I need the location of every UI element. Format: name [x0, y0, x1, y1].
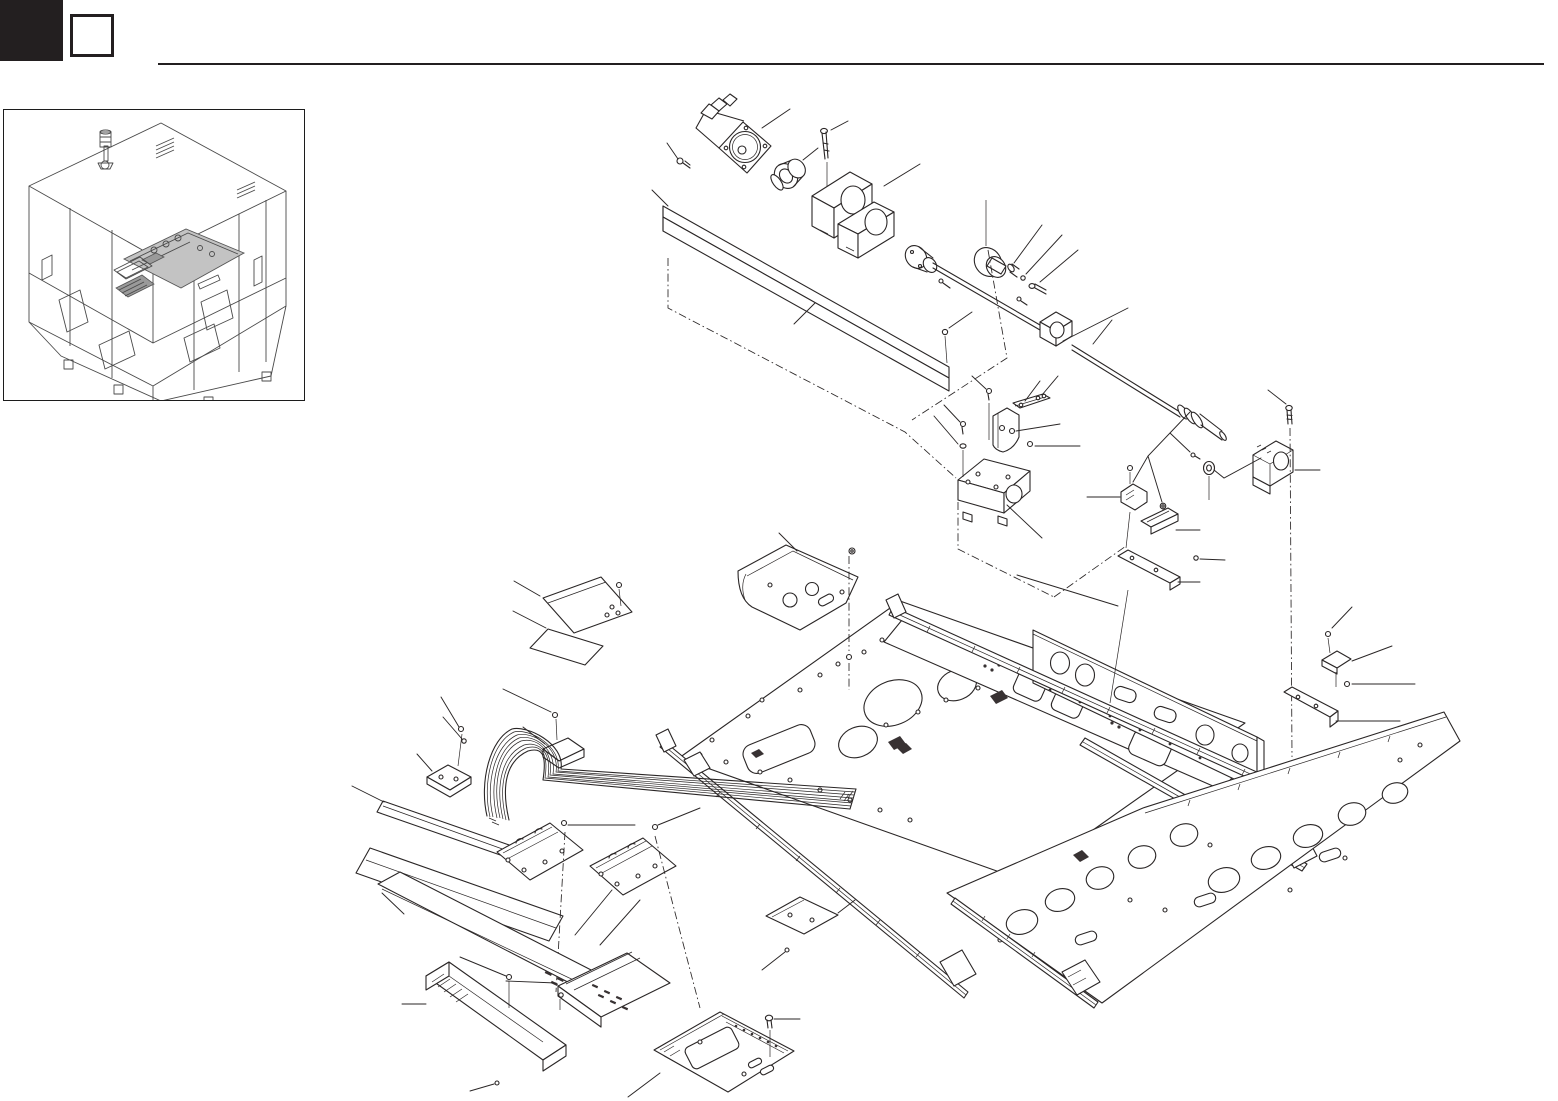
servo-motor	[696, 94, 790, 173]
cover-plate-small	[513, 577, 632, 633]
cover-strip-short	[352, 786, 512, 857]
l-bracket	[993, 408, 1060, 452]
corrugated-cover	[402, 957, 566, 1091]
catalog-page	[0, 0, 1558, 1101]
end-bolt	[1268, 390, 1292, 424]
tip-screw	[1170, 433, 1200, 459]
ball-screw-shaft	[933, 263, 1228, 441]
small-plate-mid	[762, 897, 855, 970]
motor-mount-block	[958, 459, 1042, 538]
rail-sensor-strip-right	[1284, 682, 1415, 728]
flange-screw	[652, 143, 690, 206]
end-block-center-line	[1290, 428, 1292, 757]
sensor-dog	[1141, 503, 1200, 534]
washer	[1204, 458, 1262, 500]
sensor-strip-top	[1013, 376, 1080, 447]
collar-bolt	[1029, 250, 1078, 294]
gasket-pad	[530, 629, 603, 665]
u-shaped-cover	[738, 533, 858, 630]
cable-bracket-left	[417, 697, 471, 797]
exploded-view-drawing	[0, 0, 1558, 1101]
set-screw	[1021, 235, 1062, 280]
end-support-block	[1253, 441, 1320, 494]
ball-screw-nut	[901, 241, 950, 288]
bottom-bracket-plate	[628, 1012, 800, 1097]
shaft-coupling	[766, 141, 828, 195]
rail-sensor-clip-right	[1322, 607, 1392, 687]
beam-screw	[942, 312, 972, 363]
frame-beam	[663, 206, 949, 391]
bearing-housing	[812, 164, 920, 258]
sensor-clip	[1087, 412, 1190, 510]
shaft-collar	[969, 200, 1010, 282]
dowel-pin	[1006, 225, 1042, 277]
